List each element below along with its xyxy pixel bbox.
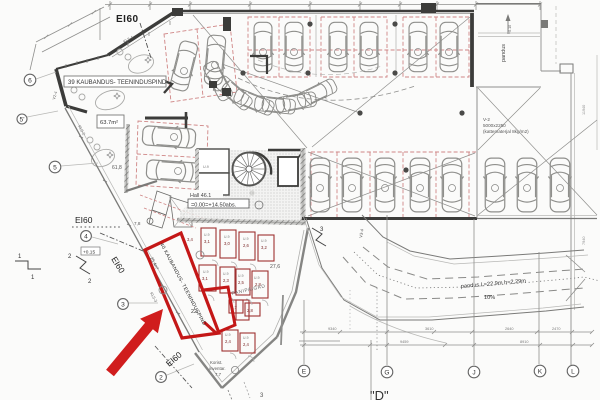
svg-text:U-9: U-9 bbox=[203, 270, 209, 274]
svg-text:2,4: 2,4 bbox=[243, 342, 249, 347]
svg-text:U-9: U-9 bbox=[204, 233, 210, 237]
svg-text:+0.10: +0.10 bbox=[508, 25, 512, 34]
svg-text:61,8: 61,8 bbox=[112, 165, 122, 171]
svg-text:Hall 46.1: Hall 46.1 bbox=[190, 193, 211, 199]
svg-text:11940: 11940 bbox=[582, 105, 586, 115]
svg-text:U-9: U-9 bbox=[243, 237, 249, 241]
svg-text:5: 5 bbox=[53, 164, 57, 171]
svg-text:3,1: 3,1 bbox=[204, 239, 210, 244]
svg-text:pandus: pandus bbox=[501, 44, 507, 62]
svg-text:5': 5' bbox=[20, 116, 25, 123]
svg-text:"D": "D" bbox=[370, 388, 389, 400]
svg-text:V-2: V-2 bbox=[483, 117, 490, 122]
svg-text:7,8: 7,8 bbox=[134, 221, 141, 226]
svg-text:8910: 8910 bbox=[520, 340, 528, 344]
svg-text:EI60: EI60 bbox=[75, 215, 93, 225]
svg-text:E: E bbox=[302, 368, 307, 375]
svg-text:2,5: 2,5 bbox=[238, 280, 244, 285]
svg-text:U-9: U-9 bbox=[238, 274, 244, 278]
svg-text:3,4: 3,4 bbox=[187, 237, 193, 242]
svg-text:3,2: 3,2 bbox=[261, 245, 267, 250]
svg-text:2,8: 2,8 bbox=[247, 308, 253, 313]
svg-text:63.7m²: 63.7m² bbox=[100, 120, 118, 126]
svg-text:U-9: U-9 bbox=[203, 165, 209, 169]
svg-text:9340: 9340 bbox=[328, 327, 336, 331]
svg-text:inventar.: inventar. bbox=[209, 366, 226, 371]
svg-text:6: 6 bbox=[28, 77, 32, 84]
svg-text:4: 4 bbox=[84, 233, 88, 240]
svg-text:2,3: 2,3 bbox=[223, 278, 229, 283]
svg-text:U-9: U-9 bbox=[225, 333, 231, 337]
svg-text:U-9: U-9 bbox=[223, 272, 229, 276]
svg-text:2640: 2640 bbox=[505, 327, 513, 331]
svg-text:=0.00=+14.50abs.: =0.00=+14.50abs. bbox=[191, 203, 237, 209]
svg-text:2470: 2470 bbox=[552, 327, 560, 331]
svg-text:EI60: EI60 bbox=[116, 14, 139, 25]
svg-text:10%: 10% bbox=[484, 295, 495, 301]
svg-text:7.7: 7.7 bbox=[215, 372, 222, 377]
svg-text:3: 3 bbox=[121, 301, 125, 308]
svg-text:39 KAUBANDUS- TEENINDUSPIND: 39 KAUBANDUS- TEENINDUSPIND bbox=[68, 80, 167, 86]
svg-text:(kattematerjal 8kg/m2): (kattematerjal 8kg/m2) bbox=[483, 129, 529, 134]
svg-text:K: K bbox=[538, 368, 543, 375]
svg-text:2,4: 2,4 bbox=[225, 339, 231, 344]
svg-text:3,0: 3,0 bbox=[224, 241, 230, 246]
svg-text:2: 2 bbox=[159, 374, 163, 381]
svg-text:3,1: 3,1 bbox=[202, 276, 208, 281]
svg-text:2,6: 2,6 bbox=[243, 243, 249, 248]
svg-text:Korist.: Korist. bbox=[210, 360, 222, 365]
svg-text:9459: 9459 bbox=[400, 340, 408, 344]
svg-text:U-9: U-9 bbox=[261, 239, 267, 243]
svg-text:U-9: U-9 bbox=[254, 276, 260, 280]
svg-text:U-9: U-9 bbox=[224, 235, 230, 239]
svg-text:+0.15: +0.15 bbox=[83, 250, 95, 256]
svg-text:7940: 7940 bbox=[582, 237, 586, 245]
svg-text:22,: 22, bbox=[191, 309, 199, 315]
svg-text:27,6: 27,6 bbox=[270, 264, 280, 270]
svg-text:J: J bbox=[472, 369, 475, 376]
svg-text:G: G bbox=[384, 369, 389, 376]
svg-text:L: L bbox=[571, 368, 575, 375]
svg-text:3610: 3610 bbox=[425, 327, 433, 331]
svg-text:U-9: U-9 bbox=[243, 336, 249, 340]
